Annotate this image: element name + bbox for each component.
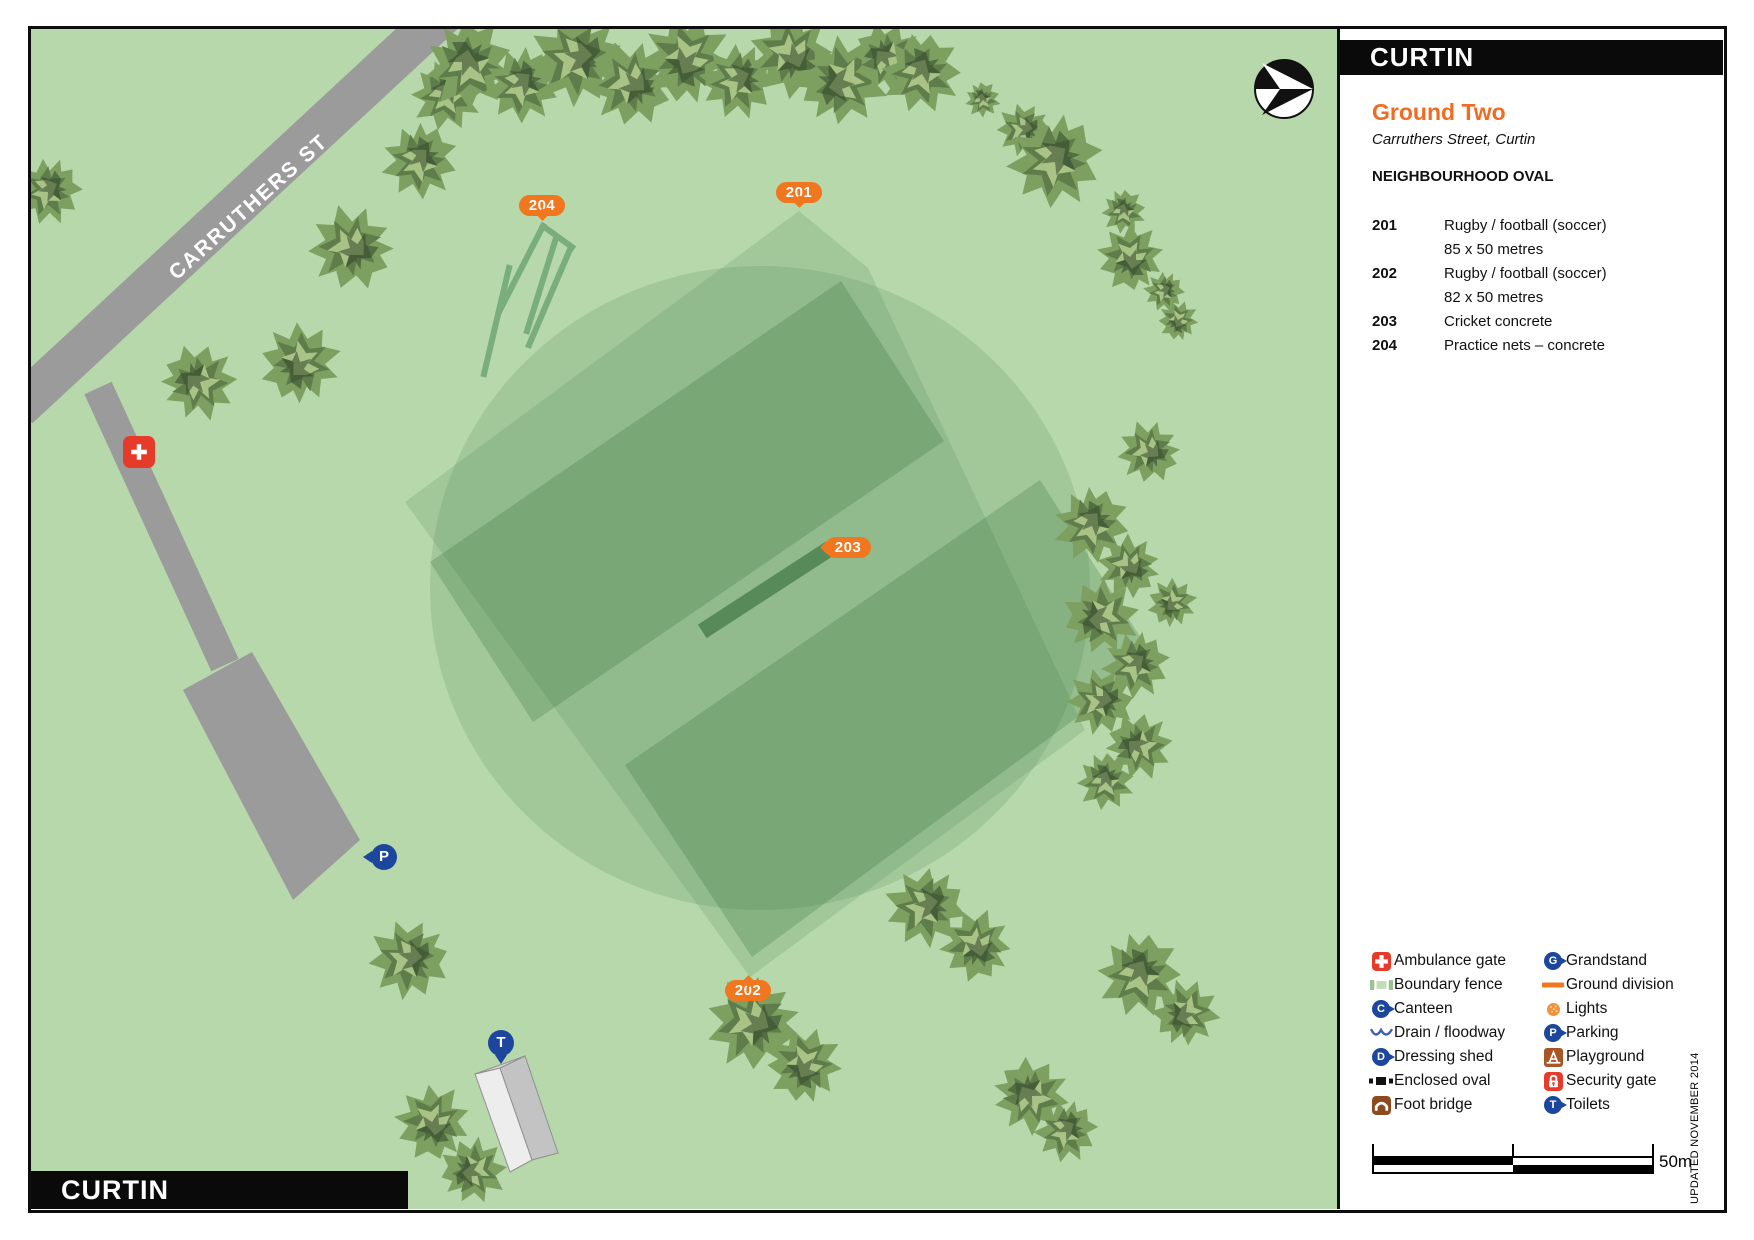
- enclosed-oval-icon: [1369, 1076, 1393, 1086]
- legend-label: Dressing shed: [1394, 1048, 1493, 1066]
- legend-row-dressing-shed: D Dressing shed: [1368, 1045, 1493, 1069]
- legend-label: Parking: [1566, 1024, 1619, 1042]
- foot-bridge-icon: [1372, 1096, 1391, 1115]
- facility-row: 85 x 50 metres: [1372, 238, 1702, 262]
- facility-row: 202 Rugby / football (soccer): [1372, 262, 1702, 286]
- facility-desc: 82 x 50 metres: [1444, 286, 1543, 310]
- legend-label: Ambulance gate: [1394, 952, 1506, 970]
- updated-date-label: UPDATED NOVEMBER 2014: [1689, 1044, 1701, 1204]
- facility-code: 201: [1372, 214, 1444, 238]
- marker-203-label: 203: [835, 539, 862, 556]
- marker-204: 204: [519, 195, 565, 216]
- drain-floodway-icon: [1370, 1026, 1393, 1040]
- panel-divider: [1337, 29, 1340, 1209]
- legend-row-security-gate: Security gate: [1540, 1069, 1656, 1093]
- facility-list: 201 Rugby / football (soccer) 85 x 50 me…: [1372, 214, 1702, 358]
- facility-code: [1372, 286, 1444, 310]
- toilets-pin-letter: T: [496, 1034, 505, 1051]
- legend-row-ambulance-gate: Ambulance gate: [1368, 949, 1506, 973]
- legend-label: Foot bridge: [1394, 1096, 1472, 1114]
- legend-label: Lights: [1566, 1000, 1607, 1018]
- legend-row-enclosed-oval: Enclosed oval: [1368, 1069, 1491, 1093]
- north-arrow-icon: [1255, 60, 1313, 118]
- marker-202: 202: [725, 980, 771, 1001]
- canteen-icon: C: [1372, 1000, 1390, 1018]
- panel-title: CURTIN: [1370, 42, 1474, 72]
- legend-row-parking: P Parking: [1540, 1021, 1619, 1045]
- facility-code: 203: [1372, 310, 1444, 334]
- facility-row: 204 Practice nets – concrete: [1372, 334, 1702, 358]
- legend-row-boundary-fence: Boundary fence: [1368, 973, 1503, 997]
- legend-label: Security gate: [1566, 1072, 1656, 1090]
- facility-code: [1372, 238, 1444, 262]
- facility-code: 202: [1372, 262, 1444, 286]
- ground-division-icon: [1542, 981, 1564, 989]
- panel-title-bar: CURTIN: [1340, 40, 1723, 75]
- ground-address: Carruthers Street, Curtin: [1372, 131, 1535, 148]
- legend-row-drain-floodway: Drain / floodway: [1368, 1021, 1505, 1045]
- legend-row-grandstand: G Grandstand: [1540, 949, 1647, 973]
- parking-pin-letter: P: [379, 848, 389, 865]
- legend-row-playground: Playground: [1540, 1045, 1644, 1069]
- legend-label: Drain / floodway: [1394, 1024, 1505, 1042]
- ground-title: Ground Two: [1372, 99, 1506, 126]
- lights-icon: [1546, 1002, 1561, 1017]
- facility-code: 204: [1372, 334, 1444, 358]
- legend-label: Boundary fence: [1394, 976, 1503, 994]
- map-canvas: CARRUTHERS ST: [31, 29, 1337, 1209]
- facility-desc: Rugby / football (soccer): [1444, 214, 1607, 238]
- legend-label: Enclosed oval: [1394, 1072, 1491, 1090]
- legend-row-canteen: C Canteen: [1368, 997, 1453, 1021]
- grandstand-icon: G: [1544, 952, 1562, 970]
- legend-label: Canteen: [1394, 1000, 1453, 1018]
- map-corner-title: CURTIN: [61, 1175, 169, 1205]
- playground-icon: [1544, 1048, 1563, 1067]
- legend-row-toilets: T Toilets: [1540, 1093, 1610, 1117]
- oval-type-label: NEIGHBOURHOOD OVAL: [1372, 168, 1553, 185]
- legend-row-lights: Lights: [1540, 997, 1607, 1021]
- ambulance-gate-pin: [123, 436, 155, 468]
- legend-label: Grandstand: [1566, 952, 1647, 970]
- facility-row: 203 Cricket concrete: [1372, 310, 1702, 334]
- boundary-fence-icon: [1370, 979, 1393, 991]
- scale-label: 50m: [1659, 1152, 1692, 1172]
- marker-203: 203: [825, 537, 871, 558]
- facility-row: 201 Rugby / football (soccer): [1372, 214, 1702, 238]
- toilets-pin: T: [488, 1030, 514, 1056]
- facility-row: 82 x 50 metres: [1372, 286, 1702, 310]
- dressing-shed-icon: D: [1372, 1048, 1390, 1066]
- legend-label: Playground: [1566, 1048, 1644, 1066]
- scale-bar: [1372, 1144, 1654, 1175]
- parking-icon: P: [1544, 1024, 1562, 1042]
- legend-row-foot-bridge: Foot bridge: [1368, 1093, 1472, 1117]
- map-corner-title-bar: CURTIN: [31, 1171, 408, 1209]
- facility-desc: Cricket concrete: [1444, 310, 1552, 334]
- security-gate-icon: [1544, 1072, 1563, 1091]
- ambulance-gate-icon: [1372, 952, 1391, 971]
- parking-pin: P: [371, 844, 397, 870]
- marker-201: 201: [776, 182, 822, 203]
- legend-row-ground-division: Ground division: [1540, 973, 1674, 997]
- cross-icon: [129, 442, 149, 462]
- toilets-icon: T: [1544, 1096, 1562, 1114]
- legend-label: Ground division: [1566, 976, 1674, 994]
- facility-desc: Rugby / football (soccer): [1444, 262, 1607, 286]
- sportsground-map-sheet: CARRUTHERS ST 201 202 203 204 P T: [0, 0, 1754, 1240]
- legend-label: Toilets: [1566, 1096, 1610, 1114]
- facility-desc: Practice nets – concrete: [1444, 334, 1605, 358]
- facility-desc: 85 x 50 metres: [1444, 238, 1543, 262]
